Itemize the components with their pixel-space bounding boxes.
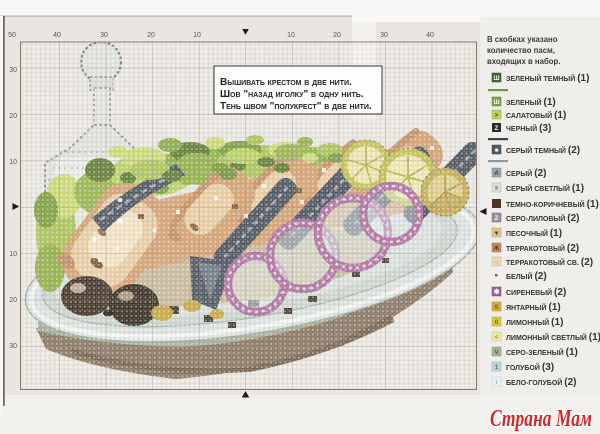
svg-text:входящих в набор.: входящих в набор.	[487, 57, 560, 66]
svg-text:20: 20	[333, 32, 341, 39]
svg-text:○: ○	[495, 260, 499, 266]
svg-text:Тень швом "полукрест" в две ни: Тень швом "полукрест" в две нити.	[220, 101, 372, 112]
svg-text:<: <	[495, 335, 499, 341]
svg-text:Ж: Ж	[493, 246, 500, 252]
svg-text:10: 10	[9, 251, 17, 258]
svg-text:■: ■	[495, 148, 499, 154]
svg-text:Ш: Ш	[493, 100, 499, 106]
svg-text:Ш: Ш	[493, 76, 499, 82]
svg-text:▼: ▼	[494, 231, 500, 237]
svg-text:30: 30	[380, 32, 388, 39]
svg-text:Z: Z	[495, 216, 499, 222]
svg-text:S: S	[494, 305, 498, 311]
svg-text:40: 40	[426, 32, 434, 39]
svg-text:>: >	[495, 113, 499, 119]
svg-text:30: 30	[100, 32, 108, 39]
svg-text:Шов "назад иголку" в одну нить: Шов "назад иголку" в одну нить.	[220, 89, 364, 100]
svg-text:10: 10	[9, 159, 17, 166]
svg-text:В скобках указано: В скобках указано	[487, 35, 558, 44]
svg-text:30: 30	[9, 67, 17, 74]
svg-text:20: 20	[9, 113, 17, 120]
svg-text:20: 20	[147, 32, 155, 39]
svg-text:50: 50	[8, 32, 16, 39]
svg-text:A: A	[494, 171, 499, 177]
svg-text:30: 30	[9, 343, 17, 350]
svg-text:Страна Мам: Страна Мам	[490, 406, 592, 432]
svg-text:40: 40	[53, 32, 61, 39]
svg-text:10: 10	[287, 32, 295, 39]
svg-text:20: 20	[9, 297, 17, 304]
svg-text:✱: ✱	[494, 288, 500, 296]
svg-text:Z: Z	[495, 126, 499, 132]
svg-text:=: =	[495, 186, 499, 192]
svg-text:10: 10	[193, 32, 201, 39]
svg-text:Вышивать крестом в две нити.: Вышивать крестом в две нити.	[220, 77, 352, 88]
svg-text:количество пасм,: количество пасм,	[487, 46, 555, 55]
svg-text:V: V	[494, 350, 498, 356]
